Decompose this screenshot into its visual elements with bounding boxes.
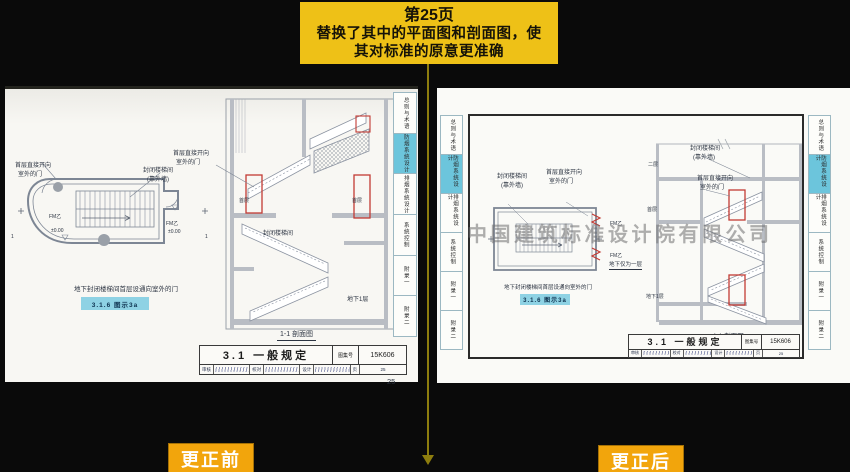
after-plan-stair-callout-line2: (靠外墙): [501, 183, 523, 190]
tab-appendix-2: 附录二: [393, 295, 417, 337]
after-section-basement-label: 地下1层: [646, 295, 664, 301]
before-title-block: 3.1 一般规定 图集号 15K606 审核 校对 设计 页 25: [199, 345, 407, 375]
tab-appendix-2-label: 附录二: [817, 320, 823, 340]
tab-chapter-4: 系统控制: [440, 232, 463, 272]
page-number: 25: [360, 365, 406, 374]
before-plan-section-mark-right: 1: [205, 235, 208, 241]
page-number: 25: [763, 350, 799, 358]
after-plan-caption: 地下封闭楼梯间首层设通向室外的门: [480, 283, 616, 291]
tab-chapter-3-label: 排烟系统设计: [446, 194, 457, 232]
before-plan-door-tag-1: FM乙: [49, 215, 61, 221]
review-label: 审核: [200, 365, 214, 374]
page-label: 页: [351, 365, 361, 374]
after-section-first-floor: 首层: [647, 208, 657, 214]
tab-appendix-2-label: 附录二: [449, 320, 455, 340]
page-label: 页: [754, 350, 763, 358]
tab-chapter-4-label: 系统控制: [449, 239, 455, 265]
after-section-stair-callout-line2: (靠外墙): [693, 155, 715, 162]
review-signature: [214, 365, 250, 374]
check-signature: [684, 350, 713, 358]
after-section-door-callout-line1: 首层直接开向: [697, 176, 733, 183]
before-plan-stair-callout-line2: (靠外墙): [147, 177, 169, 184]
banner-page-line: 第25页: [404, 6, 454, 25]
after-section-stair-callout-line1: 封闭楼梯间: [690, 146, 720, 153]
after-section-second-floor: 二层: [648, 163, 658, 169]
tab-chapter-3: 排烟系统设计: [393, 173, 417, 215]
design-label: 设计: [712, 350, 725, 358]
divider-arrow-line: [427, 64, 429, 456]
after-left-tab-strip: 总则与术语 防烟系统设计 排烟系统设计 系统控制 附录一 附录二: [440, 116, 463, 350]
tab-chapter-3: 排烟系统设计: [440, 193, 463, 233]
tab-appendix-1-label: 附录一: [449, 281, 455, 301]
before-title-block-title: 3.1 一般规定: [200, 346, 332, 364]
company-watermark: 中国建筑标准设计院有限公司: [467, 218, 812, 247]
tab-appendix-1: 附录一: [393, 255, 417, 297]
before-section-basement-label: 地下1层: [347, 297, 368, 304]
before-figure-ref-badge: 3.1.6 图示3a: [81, 297, 149, 310]
check-signature: [264, 365, 300, 374]
before-plan-section-mark-left: 1: [11, 235, 14, 241]
before-tag: 更正前: [168, 443, 254, 472]
tab-chapter-4-label: 系统控制: [817, 239, 823, 265]
before-plan-door-callout-line2: 室外的门: [18, 172, 42, 179]
tab-chapter-1: 总则与术语: [440, 115, 463, 155]
after-section-door-callout-line2: 室外的门: [700, 185, 724, 192]
check-label: 校对: [250, 365, 264, 374]
design-signature: [314, 365, 350, 374]
tab-chapter-2-active: 防烟系统设计: [440, 154, 463, 194]
before-title-block-figno-label: 图集号: [332, 346, 358, 364]
review-signature: [642, 350, 671, 358]
after-figure-ref-badge: 3.1.6 图示3a: [520, 294, 570, 305]
after-title-block-title: 3.1 一般规定: [629, 335, 741, 349]
tab-chapter-2-label: 防烟系统设计: [402, 134, 408, 173]
after-plan-door-callout-line1: 首层直接开向: [546, 170, 582, 177]
before-section-enclosed-stair-label: 封闭楼梯间: [263, 231, 293, 238]
before-title-block-figno: 15K606: [358, 346, 406, 364]
tab-chapter-2-active: 防烟系统设计: [393, 133, 417, 175]
tab-appendix-1-label: 附录一: [402, 266, 408, 286]
page-before: 首层直接开向 室外的门 封闭楼梯间 (靠外墙) FM乙 FM乙 ±0.00 ±0…: [5, 86, 418, 382]
before-corner-page-number: 25: [387, 377, 395, 386]
tab-appendix-1: 附录一: [808, 271, 831, 311]
before-tab-strip: 总则与术语 防烟系统设计 排烟系统设计 系统控制 附录一 附录二: [393, 93, 417, 337]
before-plan-door-callout-line1: 首层直接开向: [15, 163, 51, 170]
tab-chapter-1-label: 总则与术语: [449, 119, 455, 152]
tab-chapter-4-label: 系统控制: [402, 222, 408, 248]
before-section-first-floor-2: 首层: [352, 199, 362, 205]
tab-appendix-2: 附录二: [808, 310, 831, 350]
after-tag: 更正后: [598, 445, 684, 472]
before-section-drawing: [214, 91, 404, 336]
before-section-door-callout-line2: 室外的门: [176, 160, 200, 167]
tab-appendix-1-label: 附录一: [817, 281, 823, 301]
after-title-block: 3.1 一般规定 图集号 15K606 审核 校对 设计 页 25: [628, 334, 800, 358]
before-plan-level-zero-2: ±0.00: [168, 230, 180, 236]
check-label: 校对: [671, 350, 684, 358]
before-plan-caption: 地下封闭楼梯间首层设通向室外的门: [41, 283, 211, 293]
tab-chapter-2-active: 防烟系统设计: [808, 154, 831, 194]
after-title-block-figno-label: 图集号: [741, 335, 761, 349]
tab-chapter-4: 系统控制: [393, 214, 417, 256]
banner: 第25页 替换了其中的平面图和剖面图，使 其对标准的原意更准确: [300, 2, 558, 64]
tab-chapter-1: 总则与术语: [393, 92, 417, 134]
before-plan-door-tag-2: FM乙: [166, 222, 178, 228]
after-plan-stair-callout-line1: 封闭楼梯间: [497, 174, 527, 181]
after-section-basement-only-note: 地下仅为一层: [609, 262, 642, 270]
after-title-block-figno: 15K606: [761, 335, 799, 349]
design-signature: [725, 350, 754, 358]
banner-text-line3: 其对标准的原意更准确: [354, 43, 504, 61]
comparison-slide: 第25页 替换了其中的平面图和剖面图，使 其对标准的原意更准确: [0, 0, 850, 472]
tab-chapter-2-label: 防烟系统设计: [446, 155, 457, 193]
tab-chapter-3-label: 排烟系统设计: [814, 194, 825, 232]
tab-appendix-1: 附录一: [440, 271, 463, 311]
page-after: 总则与术语 防烟系统设计 排烟系统设计 系统控制 附录一 附录二: [437, 88, 850, 383]
tab-chapter-1: 总则与术语: [808, 115, 831, 155]
divider-arrow-head-icon: [422, 455, 434, 465]
tab-chapter-1-label: 总则与术语: [817, 119, 823, 152]
tab-chapter-1-label: 总则与术语: [402, 97, 408, 130]
tab-chapter-2-label: 防烟系统设计: [814, 155, 825, 193]
before-plan-level-zero-1: ±0.00: [51, 229, 63, 235]
before-section-caption: 1-1 剖面图: [277, 329, 316, 341]
banner-text-line2: 替换了其中的平面图和剖面图，使: [317, 25, 542, 43]
review-label: 审核: [629, 350, 642, 358]
tab-appendix-2-label: 附录二: [402, 306, 408, 326]
before-plan-stair-callout-line1: 封闭楼梯间: [143, 168, 173, 175]
tab-chapter-3-label: 排烟系统设计: [402, 175, 408, 214]
before-section-door-callout-line1: 首层直接开向: [173, 151, 209, 158]
tab-appendix-2: 附录二: [440, 310, 463, 350]
before-section-first-floor-1: 首层: [239, 199, 249, 205]
design-label: 设计: [300, 365, 314, 374]
after-plan-door-callout-line2: 室外的门: [549, 179, 573, 186]
after-plan-door-tag-2: FM乙: [610, 254, 622, 260]
